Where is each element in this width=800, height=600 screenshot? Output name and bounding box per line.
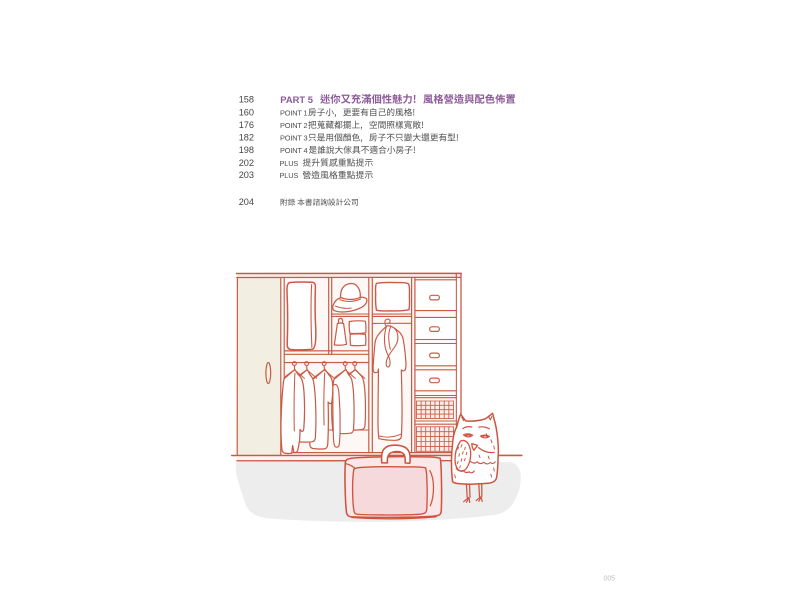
- svg-text:176: 176: [239, 120, 254, 130]
- svg-text:160: 160: [239, 107, 254, 117]
- svg-text:204: 204: [239, 197, 254, 207]
- svg-text:PLUS: PLUS: [280, 171, 299, 180]
- svg-text:POINT 1: POINT 1: [280, 108, 308, 117]
- svg-text:198: 198: [239, 145, 254, 155]
- svg-text:PLUS: PLUS: [280, 159, 299, 168]
- svg-text:POINT 3: POINT 3: [280, 134, 308, 143]
- svg-text:POINT 4: POINT 4: [280, 146, 308, 155]
- svg-text:202: 202: [239, 158, 254, 168]
- svg-text:182: 182: [239, 133, 254, 143]
- svg-text:PART 5: PART 5: [280, 94, 313, 105]
- svg-text:203: 203: [239, 170, 254, 180]
- svg-text:005: 005: [604, 576, 616, 583]
- svg-text:158: 158: [239, 95, 254, 105]
- svg-text:POINT 2: POINT 2: [280, 121, 308, 130]
